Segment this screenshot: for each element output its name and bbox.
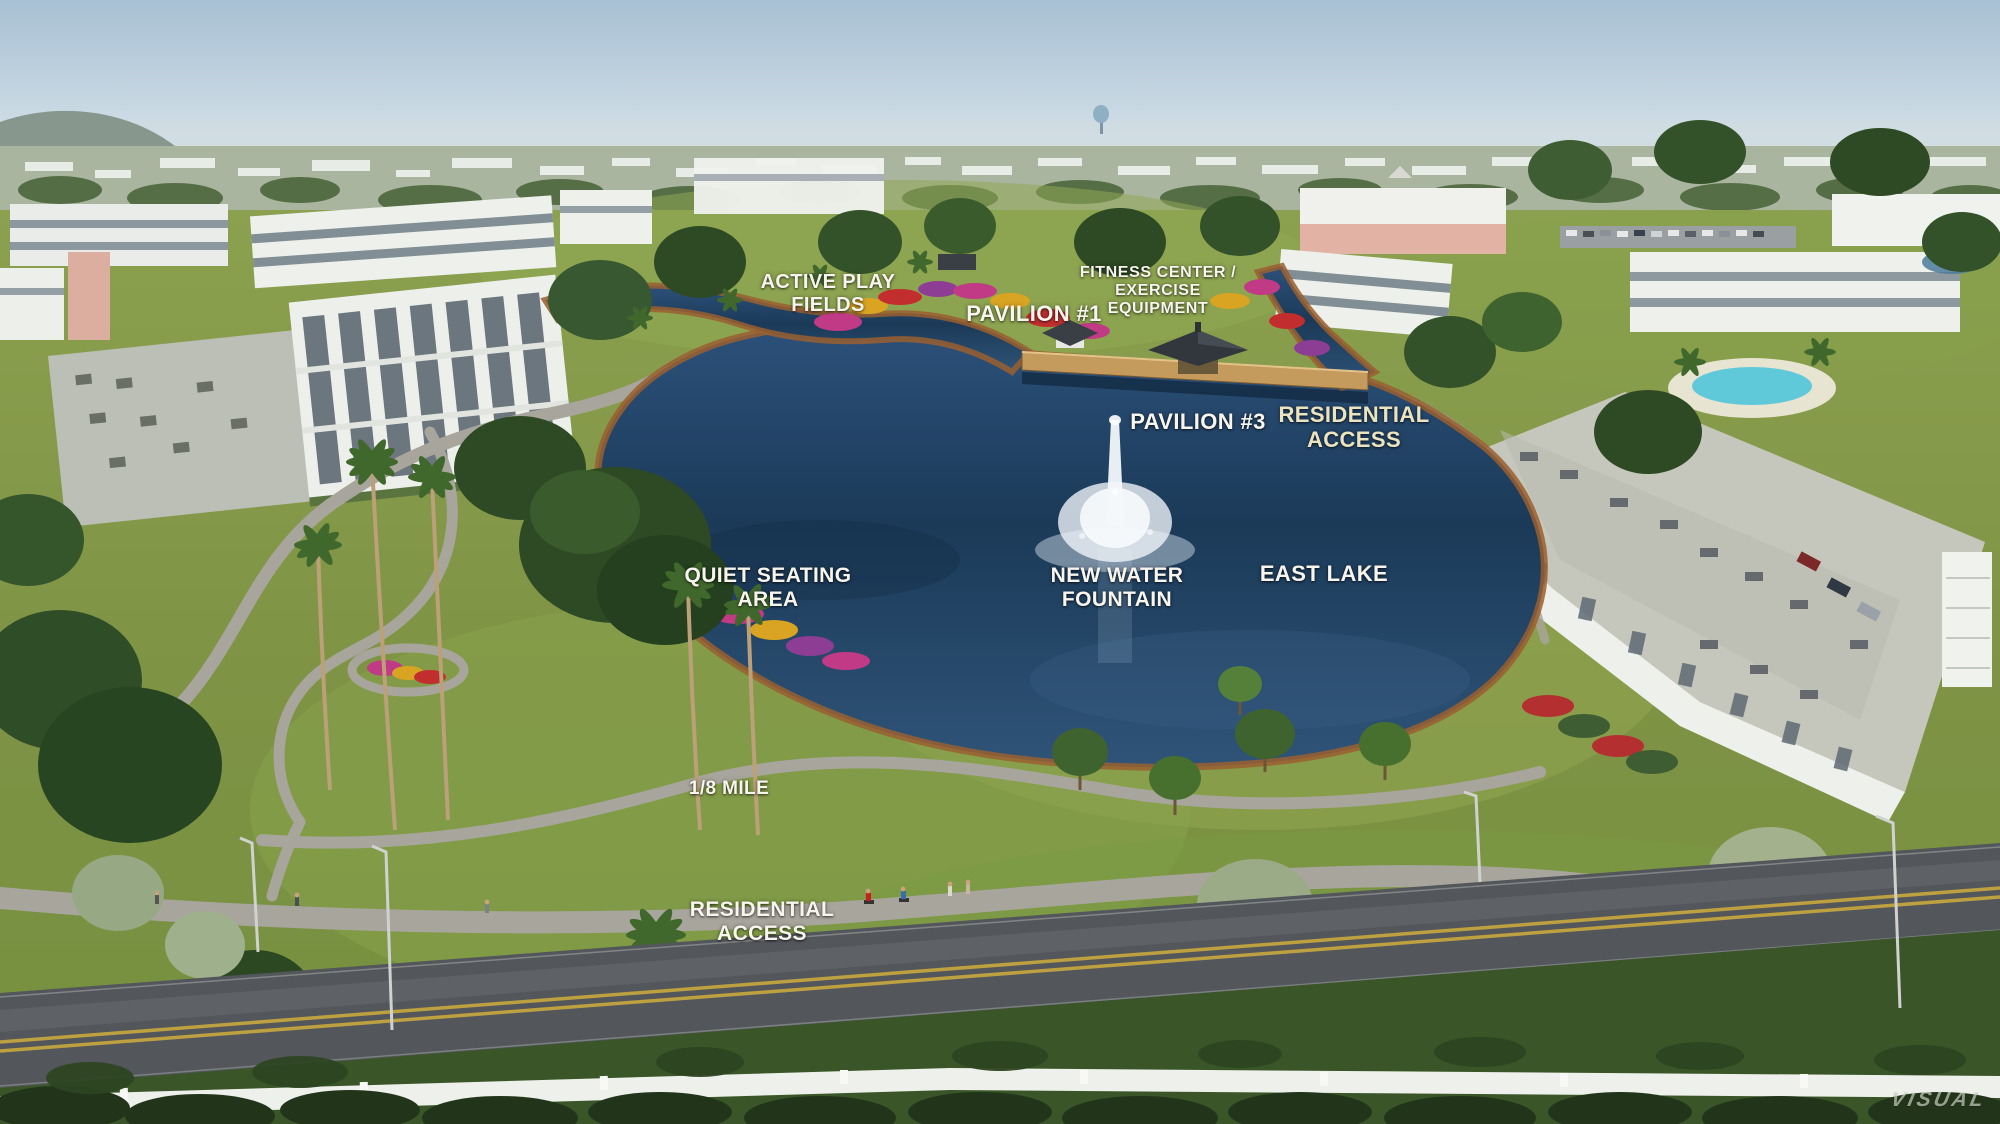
label-line: EQUIPMENT xyxy=(1080,300,1236,318)
label-fitness-center: FITNESS CENTER / EXERCISE EQUIPMENT xyxy=(1080,264,1236,319)
label-line: ACCESS xyxy=(1278,427,1429,452)
label-residential-access-north: RESIDENTIAL ACCESS xyxy=(1278,402,1429,452)
fitness-shelter xyxy=(938,254,976,270)
label-pavilion-3: PAVILION #3 xyxy=(1130,409,1266,434)
label-residential-access-south: RESIDENTIAL ACCESS xyxy=(690,898,834,946)
clubhouse-facade xyxy=(1300,224,1506,254)
label-line: ACCESS xyxy=(690,922,834,946)
label-line: EXERCISE xyxy=(1080,282,1236,300)
label-line: 1/8 MILE xyxy=(689,778,769,800)
label-line: ACTIVE PLAY xyxy=(761,271,896,294)
label-line: FOUNTAIN xyxy=(1051,588,1184,612)
label-line: FIELDS xyxy=(761,294,896,317)
label-line: AREA xyxy=(685,588,852,612)
label-line: RESIDENTIAL xyxy=(1278,402,1429,427)
label-quiet-seating-area: QUIET SEATING AREA xyxy=(685,564,852,612)
label-line: QUIET SEATING xyxy=(685,564,852,588)
aerial-site-rendering: ACTIVE PLAY FIELDS PAVILION #1 FITNESS C… xyxy=(0,0,2000,1124)
watermark: VISUAL xyxy=(1888,1088,1988,1112)
label-line: PAVILION #3 xyxy=(1130,409,1266,434)
label-line: FITNESS CENTER / xyxy=(1080,264,1236,282)
scene-artwork xyxy=(0,0,2000,1124)
label-east-lake: EAST LAKE xyxy=(1260,561,1388,586)
label-one-eighth-mile: 1/8 MILE xyxy=(689,778,769,800)
label-new-water-fountain: NEW WATER FOUNTAIN xyxy=(1051,564,1184,612)
label-line: EAST LAKE xyxy=(1260,561,1388,586)
stair-tower xyxy=(1942,552,1992,687)
label-line: RESIDENTIAL xyxy=(690,898,834,922)
label-active-play-fields: ACTIVE PLAY FIELDS xyxy=(761,271,896,317)
label-line: NEW WATER xyxy=(1051,564,1184,588)
